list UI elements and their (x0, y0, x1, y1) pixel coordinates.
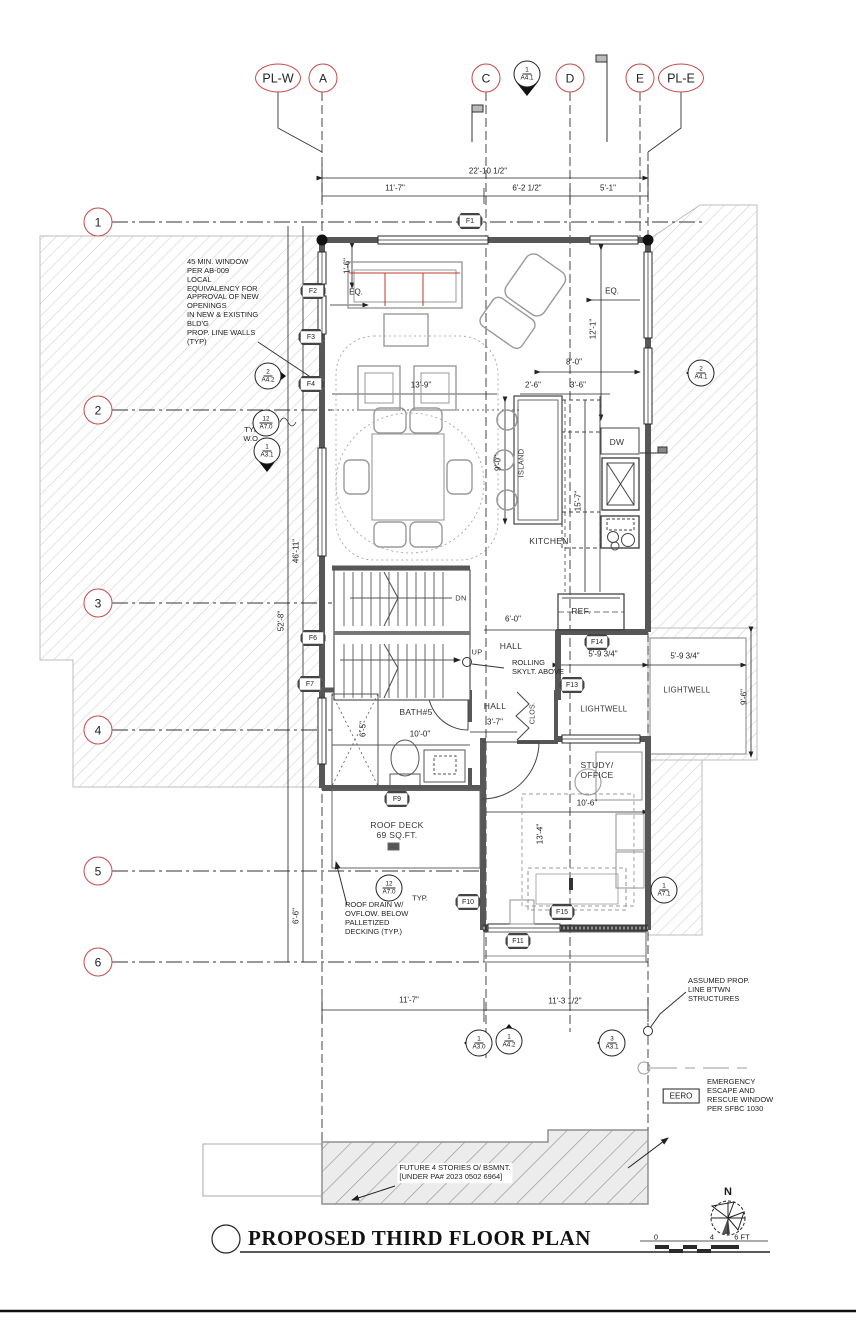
north-arrow (711, 1201, 745, 1235)
room-closet: CLOS. (530, 702, 537, 725)
room-roof-deck: ROOF DECK 69 SQ.FT. (370, 820, 423, 840)
note-assumed-prop-line: ASSUMED PROP. LINE B'TWN STRUCTURES (688, 977, 750, 1004)
section-ref-number: 2 (696, 365, 706, 373)
dim-kitchen-8: 8'-0" (566, 358, 582, 367)
kitchen-fixtures (494, 396, 639, 630)
eero-tag: EERO (663, 1089, 700, 1104)
section-ref-number: 2 (263, 368, 273, 376)
stairs (334, 570, 470, 700)
scale-six: 6 FT (734, 1233, 749, 1242)
window-marker-f11: F11 (506, 933, 531, 949)
note-eero: EMERGENCY ESCAPE AND RESCUE WINDOW PER S… (707, 1078, 773, 1113)
scale-four: 4 (710, 1233, 714, 1242)
grid-col-d: D (556, 64, 585, 93)
window-marker-f4: F4 (299, 376, 324, 392)
grid-col-a: A (309, 64, 338, 93)
dim-kitchen-26: 2'-6" (525, 381, 541, 390)
section-ref-number: 1 (474, 1035, 484, 1043)
room-lightwell-inner: LIGHTWELL (581, 705, 628, 714)
corner-dot-east (643, 235, 654, 246)
section-ref-sheet: A4.2 (262, 377, 275, 384)
section-ref-number: 1 (504, 1033, 514, 1041)
detail-ref-sheet: A7.1 (658, 891, 671, 898)
section-ref-sheet: A3.1 (606, 1044, 619, 1051)
scale-zero: 0 (654, 1233, 658, 1242)
grid-col-c: C (472, 64, 501, 93)
room-study-office: STUDY/ OFFICE (581, 760, 614, 780)
grid-col-ple: PL-E (658, 64, 704, 93)
section-ref-number: 1 (262, 443, 272, 451)
title-block (0, 1201, 856, 1311)
detail-ref-a70-typ: 12 A7.0 (253, 410, 280, 437)
window-marker-f7: F7 (298, 676, 323, 692)
dim-kitchen-36: 3'-6" (570, 381, 586, 390)
dim-left-66: 6'-6" (292, 908, 301, 924)
section-ref-sheet: A3.1 (261, 452, 274, 459)
dim-hall-width: 6'-0" (505, 615, 521, 624)
dim-bath-65: 6'-5" (359, 721, 368, 737)
stair-dn: DN (454, 594, 467, 603)
dim-hall2-width: 3'-7" (487, 718, 503, 727)
dim-overall-width: 22'-10 1/2" (469, 167, 507, 176)
corner-dot-west (317, 235, 328, 246)
section-ref-a42-bottom: 1 A4.2 (496, 1028, 523, 1055)
detail-ref-number: 12 (382, 880, 395, 888)
grid-row-3: 3 (84, 589, 113, 618)
window-marker-f13: F13 (560, 677, 585, 693)
section-ref-number: 3 (607, 1035, 617, 1043)
dim-d-e: 5'-1" (600, 184, 616, 193)
section-ref-sheet: A4.2 (503, 1042, 516, 1049)
section-ref-a31-left: 1 A3.1 (254, 438, 281, 465)
grid-row-6: 6 (84, 948, 113, 977)
section-ref-a41-right: 2 A4.1 (688, 360, 715, 387)
dim-sofa-inset: 1'-6" (343, 258, 352, 274)
dim-bottom-left: 11'-7" (399, 996, 419, 1005)
note-rolling-skylight: ROLLING SKYLT. ABOVE (512, 659, 564, 677)
dim-eq-left: EQ. (349, 288, 363, 297)
dim-bottom-right: 11'-3 1/2" (548, 997, 581, 1006)
grid-row-5: 5 (84, 857, 113, 886)
dim-island-length: 9'-0" (494, 455, 503, 471)
window-marker-f2: F2 (301, 283, 326, 299)
detail-ref-sheet: A7.0 (383, 889, 396, 896)
section-ref-sheet: A4.1 (695, 374, 708, 381)
section-ref-sheet: A4.1 (521, 75, 534, 82)
section-ref-a42-left: 2 A4.2 (255, 363, 282, 390)
dim-lightwell-in: 5'-9 3/4" (588, 650, 617, 659)
room-hall-1: HALL (500, 641, 522, 651)
dim-left-528: 52'-8" (277, 611, 286, 631)
window-marker-f3: F3 (299, 329, 324, 345)
dim-eq-right: EQ. (605, 287, 619, 296)
note-prop-line-walls: 45 MIN. WINDOW PER AB-009 LOCAL EQUIVALE… (187, 258, 281, 346)
detail-ref-number: 1 (659, 882, 669, 890)
section-ref-sheet: A3.0 (473, 1044, 486, 1051)
window-marker-f15: F15 (550, 904, 575, 920)
room-island: ISLAND (517, 449, 526, 478)
grid-row-1: 1 (84, 208, 113, 237)
floor-plan-drawing (0, 0, 856, 1324)
grid-col-plw: PL-W (255, 64, 301, 93)
detail-ref-a71-study: 1 A7.1 (651, 877, 678, 904)
note-future-building: FUTURE 4 STORIES O/ BSMNT. [UNDER PA# 20… (397, 1163, 512, 1183)
note-roof-drain: ROOF DRAIN W/ OVFLOW. BELOW PALLETIZED D… (345, 901, 408, 936)
appliance-dw: DW (610, 437, 625, 447)
window-marker-f1: F1 (458, 213, 483, 229)
stair-up: UP (470, 648, 483, 657)
note-typ-deck: TYP. (412, 895, 428, 904)
dim-left-4611: 46'-11" (292, 539, 301, 563)
window-marker-f9: F9 (385, 791, 410, 807)
section-ref-a31-bottom: 3 A3.1 (599, 1030, 626, 1057)
drawing-title: PROPOSED THIRD FLOOR PLAN (248, 1226, 591, 1251)
study-furniture (510, 752, 644, 924)
grid-row-4: 4 (84, 716, 113, 745)
window-marker-f6: F6 (301, 630, 326, 646)
furniture (336, 249, 570, 560)
section-ref-a30-bottom: 1 A3.0 (466, 1030, 493, 1057)
floor-plan-sheet: PL-W A C D E PL-E 1 2 3 4 5 6 22'-10 1/2… (0, 0, 856, 1324)
dim-study-height: 13'-4" (536, 824, 545, 844)
detail-ref-sheet: A7.0 (260, 424, 273, 431)
dim-lightwell-out: 5'-9 3/4" (670, 652, 699, 661)
hatch-right-neighbor (648, 205, 757, 935)
dim-lightwell-height: 9'-6" (740, 689, 749, 705)
grid-row-2: 2 (84, 396, 113, 425)
dim-living-width: 13'-9" (411, 381, 431, 390)
appliance-ref: REF. (571, 606, 591, 616)
section-ref-number: 1 (522, 66, 532, 74)
room-hall-2: HALL (484, 701, 506, 711)
room-kitchen: KITCHEN (529, 536, 568, 546)
section-ref-a41-top: 1 A4.1 (514, 61, 541, 88)
detail-ref-a70-deck: 12 A7.0 (376, 875, 403, 902)
dim-bath-width: 10'-0" (410, 730, 430, 739)
dim-a-c: 11'-7" (385, 184, 405, 193)
window-marker-f14: F14 (585, 634, 610, 650)
dim-c-d: 6'-2 1/2" (512, 184, 541, 193)
scale-bar (640, 1241, 768, 1253)
detail-ref-number: 12 (259, 415, 272, 423)
room-bath5: BATH#5 (399, 707, 432, 717)
grid-col-e: E (626, 64, 655, 93)
room-lightwell-outer: LIGHTWELL (664, 686, 711, 695)
dim-study-width: 10'-6" (577, 799, 597, 808)
window-marker-f10: F10 (456, 894, 481, 910)
dim-counter-length: 15'-7" (574, 491, 583, 511)
dim-east-window: 12'-1" (589, 319, 598, 339)
north-label: N (724, 1186, 732, 1198)
